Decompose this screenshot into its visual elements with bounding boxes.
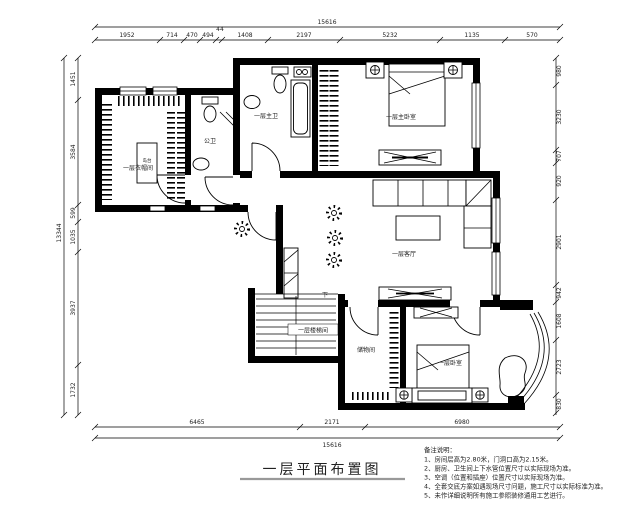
nightstand-lamp-right: [444, 62, 462, 78]
toilet-bowl: [274, 75, 286, 93]
dim-right-seg-2: 707: [556, 150, 563, 162]
room-label-master-bedroom: 一层主卧室: [386, 113, 416, 121]
dim-right-seg-7: 2723: [556, 359, 563, 374]
dim-top-seg-0: 1952: [119, 32, 134, 39]
dim-right-seg-1: 3230: [556, 109, 563, 124]
dim-right-seg-3: 920: [556, 175, 563, 187]
cloakroom-island-label: 岛台: [143, 157, 152, 164]
tv-cabinet-bedroom: [414, 307, 458, 318]
room-label-bedroom: 一层卧室: [438, 359, 462, 367]
dim-left-seg-2: 599: [70, 207, 77, 219]
entry-door: [248, 212, 276, 240]
room-label-master-bath: 一层主卫: [254, 112, 278, 120]
tv-cabinet-master: [379, 150, 441, 165]
room-label-stairwell: 一层楼梯间: [298, 327, 328, 335]
plant: [328, 254, 341, 267]
floor-plan-drawing: 15616 1952 714 470 494 44 1408 2197 5232…: [0, 0, 630, 509]
dimension-line-bottom: 6465 2171 6980 15616: [92, 419, 563, 449]
nightstand-lamp-left: [366, 62, 384, 78]
notes-block: 备注说明： 1、房间层高为2.80米，门洞口高为2.15米。 2、厨房、卫生间上…: [424, 445, 607, 500]
storage-door: [350, 307, 378, 335]
notes-heading: 备注说明：: [424, 445, 456, 454]
dim-top-seg-9: 570: [526, 32, 538, 39]
dim-bottom-seg-1: 2171: [324, 419, 339, 426]
dim-bottom-total: 15616: [322, 442, 341, 449]
dim-top-seg-5: 1408: [237, 32, 252, 39]
dim-left-total: 13344: [56, 223, 63, 242]
dim-left-seg-4: 3937: [70, 300, 77, 315]
toilet-tank: [202, 97, 218, 104]
shoe-cabinet: [284, 248, 298, 298]
dim-top-total: 15616: [317, 19, 336, 26]
room-master-bedroom: 一层主卧室: [324, 62, 462, 166]
cloakroom-door: [157, 175, 185, 203]
window-cloakroom-top-1: [120, 87, 146, 95]
notes-item-2: 2、厨房、卫生间上下水管位置尺寸以实际现场为准。: [424, 464, 575, 473]
dim-bottom-seg-2: 6980: [454, 419, 469, 426]
room-cloakroom: 岛台 一层衣帽间: [107, 101, 181, 200]
dim-top-seg-1: 714: [166, 32, 178, 39]
dim-left-seg-3: 1035: [70, 229, 77, 244]
room-label-living: 一层客厅: [392, 250, 416, 258]
sofa-l-shaped: [373, 180, 491, 248]
dimension-line-top: 15616 1952 714 470 494 44 1408 2197 5232…: [92, 19, 563, 43]
tv-cabinet-living: [379, 287, 451, 300]
dim-top-seg-3: 494: [202, 32, 214, 39]
dim-top-seg-8: 1135: [464, 32, 479, 39]
dim-top-seg-6: 2197: [296, 32, 311, 39]
notes-item-5: 5、未作详细说明所有施工参照装修通用工艺进行。: [424, 491, 569, 500]
notes-item-3: 3、空调（位置和插座）位置尺寸以实际现场为准。: [424, 473, 569, 482]
dim-left-seg-0: 1451: [70, 71, 77, 86]
drawing-title: 一层平面布置图: [240, 462, 405, 479]
vent-box-2: [200, 206, 215, 211]
window-cloakroom-top-2: [153, 87, 177, 95]
dim-top-seg-4: 44: [216, 26, 224, 33]
bed: [417, 345, 469, 394]
dimension-line-right: 980 3230 707 920 2901 942 1608 2723 830: [553, 55, 563, 416]
plant: [328, 207, 341, 220]
entry-plant: [236, 223, 249, 236]
window-living-right-1: [492, 198, 500, 243]
stairs-down-label: 下: [322, 292, 328, 299]
washbasin: [193, 158, 209, 170]
room-master-bath: 一层主卫: [244, 67, 311, 137]
room-label-guest-bath: 公卫: [204, 138, 216, 145]
guest-bath-door: [205, 177, 233, 205]
window-master-right: [472, 83, 480, 148]
window-living-right-2: [492, 252, 500, 295]
room-label-cloakroom: 一层衣帽间: [123, 164, 153, 172]
page-title: 一层平面布置图: [263, 462, 382, 478]
dim-top-seg-2: 470: [186, 32, 198, 39]
dim-right-seg-4: 2901: [556, 234, 563, 249]
dim-bottom-seg-0: 6465: [189, 419, 204, 426]
coffee-table: [396, 216, 440, 240]
vent-box-1: [150, 206, 165, 211]
toilet-bowl: [204, 106, 216, 122]
dim-left-seg-5: 1732: [70, 382, 77, 397]
room-bedroom: 一层卧室: [396, 307, 526, 403]
room-storage: 储物间: [352, 312, 394, 396]
dim-right-seg-6: 1608: [556, 313, 563, 328]
plant: [329, 232, 342, 245]
notes-item-1: 1、房间层高为2.80米，门洞口高为2.15米。: [424, 455, 552, 464]
headboard: [412, 388, 472, 403]
washbasin: [244, 96, 260, 109]
toilet-tank: [272, 67, 288, 74]
dim-right-seg-8: 830: [556, 398, 563, 410]
dim-right-seg-0: 980: [556, 65, 563, 77]
dimension-line-left: 1451 3584 599 1035 3937 1732 13344: [56, 55, 81, 418]
nightstand-lamp-left: [396, 388, 412, 402]
notes-item-4: 4、全套交底方案如遇现场尺寸问题，施工尺寸以实际标准为准。: [424, 482, 607, 491]
room-stairwell: 下 一层楼梯间: [255, 292, 338, 355]
floor-plan-page: 15616 1952 714 470 494 44 1408 2197 5232…: [0, 0, 630, 509]
dim-right-seg-5: 942: [556, 287, 563, 299]
room-guest-bath: 公卫: [193, 97, 236, 170]
dim-top-seg-7: 5232: [382, 32, 397, 39]
nightstand-lamp-right: [472, 388, 488, 402]
room-label-storage: 储物间: [357, 346, 375, 354]
dim-left-seg-1: 3584: [70, 144, 77, 159]
master-bath-door: [252, 143, 280, 171]
